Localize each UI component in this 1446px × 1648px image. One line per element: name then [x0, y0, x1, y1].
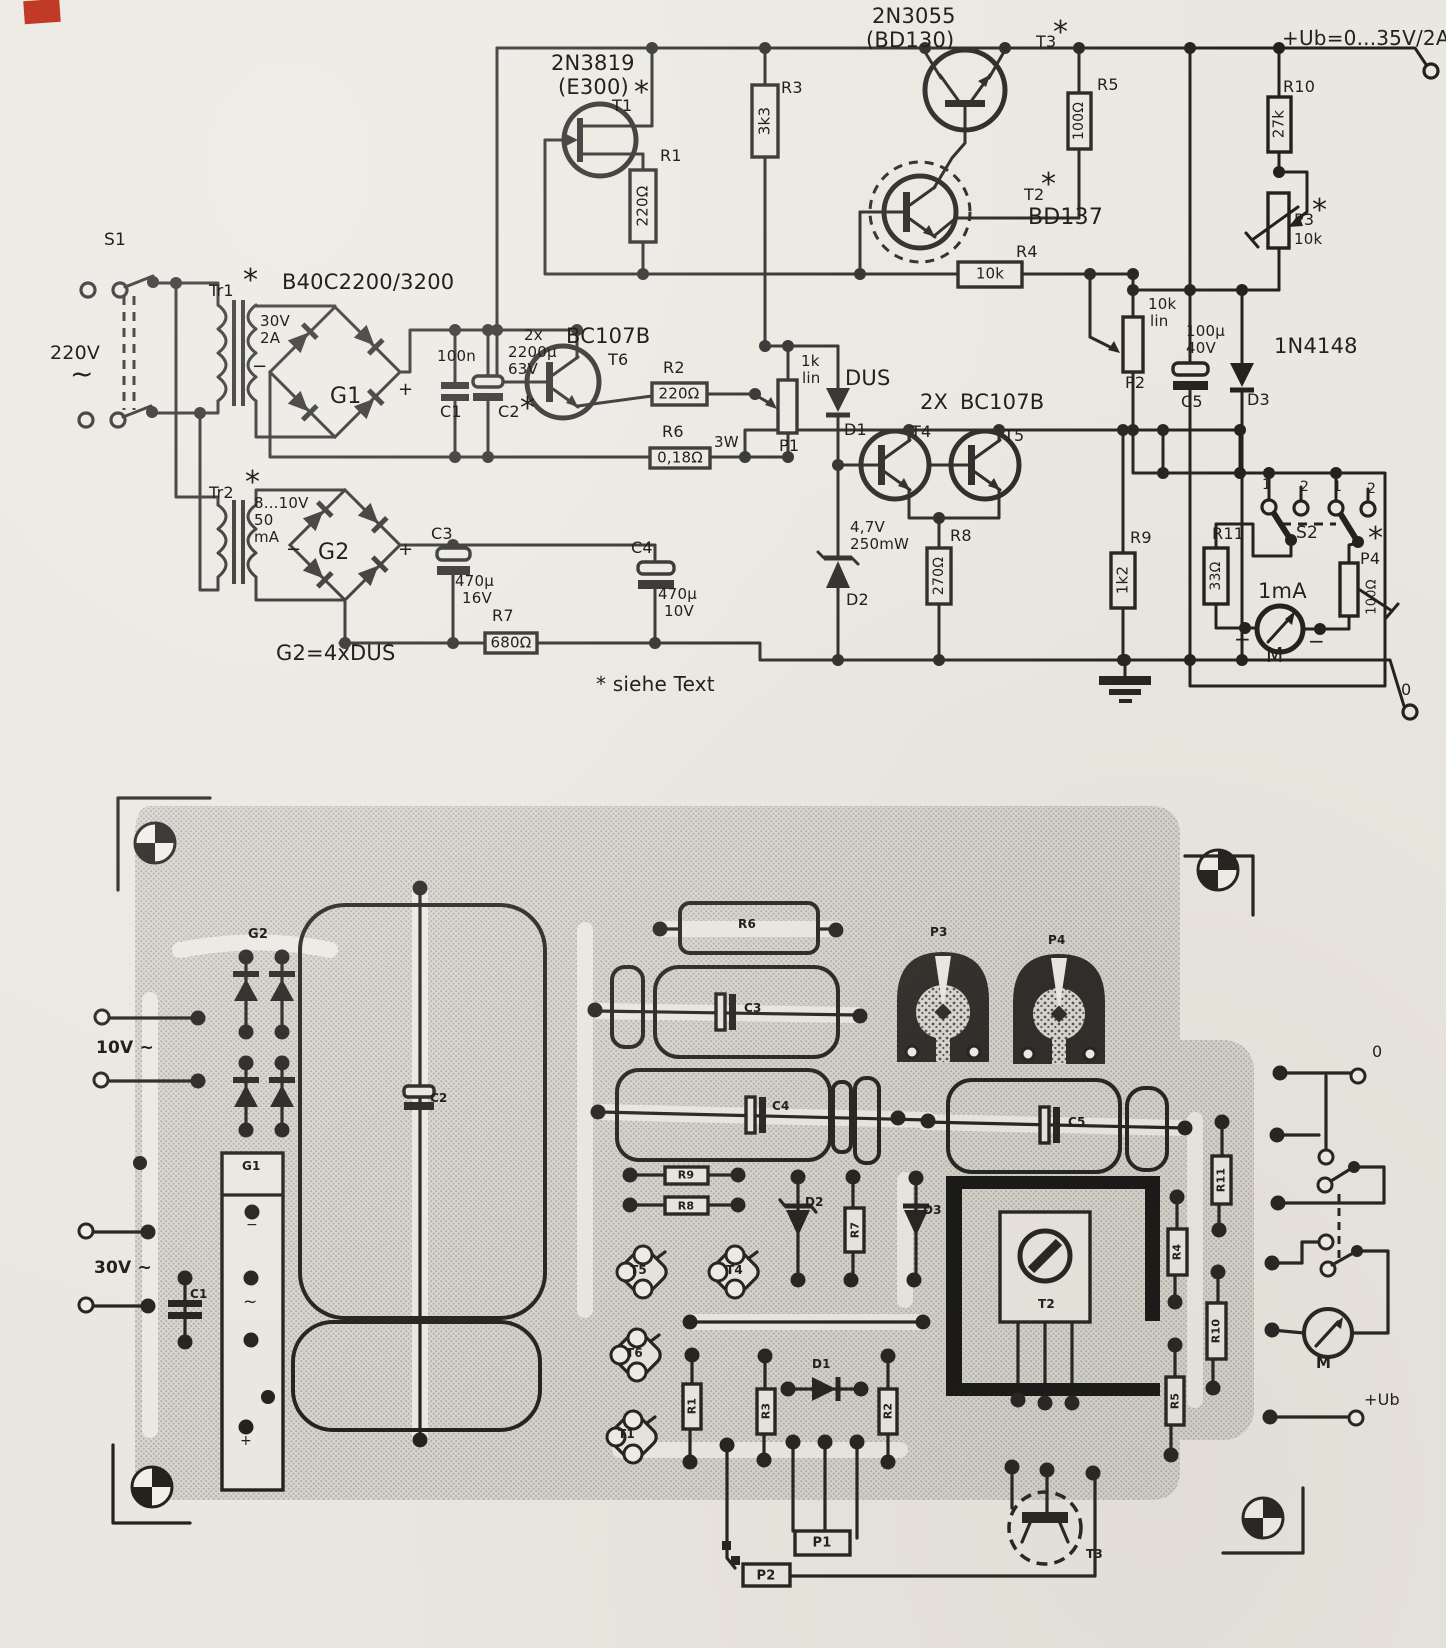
- transistor-t1-fet: [545, 104, 652, 176]
- diode-d3: [1230, 363, 1254, 390]
- p1-label: P1: [779, 438, 799, 454]
- pcb-r9-label: R9: [678, 1170, 695, 1181]
- d1-part: DUS: [845, 368, 890, 389]
- ground-symbol: [1099, 660, 1151, 703]
- pcb-g1-minus: −: [246, 1218, 258, 1232]
- pcb-r7-label: R7: [850, 1222, 861, 1239]
- meter-label: M: [1266, 645, 1283, 665]
- pcb-r8-label: R8: [678, 1201, 695, 1212]
- c5-label: C5: [1181, 394, 1203, 410]
- pcb-t6-label: T6: [626, 1347, 643, 1359]
- r4-value: 10k: [976, 267, 1004, 282]
- schematic-panel: [79, 42, 1438, 719]
- t6-label: T6: [608, 352, 628, 368]
- pcb-r4-label: R4: [1172, 1244, 1183, 1261]
- pcb-r6-label: R6: [738, 918, 756, 930]
- c2-volt: 63V: [508, 362, 538, 377]
- r1-value: 220Ω: [636, 186, 651, 227]
- pcb-p2-label: P2: [757, 1570, 776, 1583]
- pcb-t4-label: T4: [726, 1264, 743, 1276]
- c1-value: 100n: [437, 349, 476, 364]
- pcb-g1-label: G1: [242, 1160, 261, 1172]
- t45-part: BC107B: [960, 392, 1044, 413]
- g2-volt: 8...10V: [254, 496, 309, 511]
- t3-part-alt: (BD130): [866, 30, 954, 51]
- potentiometer-p1: [757, 380, 797, 433]
- d1-label: D1: [844, 422, 867, 438]
- r9-label: R9: [1130, 530, 1152, 546]
- pcb-p3-label: P3: [930, 926, 948, 938]
- r11-label: R11: [1212, 526, 1244, 542]
- p3-value: 10k: [1294, 232, 1322, 247]
- pcb-r10-label: R10: [1211, 1319, 1222, 1343]
- g1-volt: 30V: [260, 314, 290, 329]
- c2-label: C2: [498, 404, 520, 420]
- t3-star: *: [1053, 18, 1068, 48]
- d2-volt: 4,7V: [850, 520, 885, 535]
- diagram-canvas: [0, 0, 1446, 1648]
- t2-part: BD137: [1028, 207, 1103, 229]
- g2-cur: 50: [254, 513, 274, 528]
- c4-label: C4: [631, 540, 653, 556]
- pcb-c2-label: C2: [430, 1092, 448, 1104]
- r1-label: R1: [660, 148, 682, 164]
- pcb-d1-label: D1: [812, 1358, 831, 1370]
- p2-label: P2: [1125, 375, 1145, 391]
- t3-part: 2N3055: [872, 6, 956, 27]
- p2-value: 10k: [1148, 297, 1176, 312]
- r3-value: 3k3: [758, 107, 773, 135]
- r7-value: 680Ω: [491, 636, 532, 651]
- pcb-r1-label: R1: [687, 1398, 698, 1415]
- t6-part: BC107B: [566, 326, 650, 347]
- p2-lin: lin: [1150, 314, 1168, 329]
- pcb-t5-label: T5: [630, 1264, 647, 1276]
- t1-label: T1: [612, 98, 632, 114]
- r8-value: 270Ω: [932, 557, 946, 595]
- note-siehe-text: * siehe Text: [596, 674, 715, 694]
- r2-value: 220Ω: [659, 387, 700, 402]
- g2-label: G2: [318, 542, 349, 564]
- pcb-r2-label: R2: [883, 1403, 894, 1420]
- transformer-tr2: [218, 500, 256, 584]
- g2-minus: −: [286, 541, 301, 559]
- t5-label: T5: [1004, 428, 1024, 444]
- pcb-panel: [79, 798, 1388, 1586]
- c3-value: 470µ: [455, 574, 494, 589]
- pcb-rectifier-g1: [222, 1153, 283, 1490]
- r11-value: 33Ω: [1209, 561, 1223, 590]
- transformer-tr1: [218, 300, 256, 406]
- g1-amp: 2A: [260, 331, 280, 346]
- r3-label: R3: [781, 80, 803, 96]
- s1-label: S1: [104, 232, 126, 249]
- capacitor-c3: [437, 548, 470, 575]
- pcb-g1-ac: ~: [243, 1294, 257, 1311]
- p4-star: *: [1368, 524, 1383, 554]
- t4-label: T4: [911, 424, 931, 440]
- pcb-r3-label: R3: [761, 1403, 772, 1420]
- transistor-t4: [859, 431, 929, 499]
- transistor-t3: [925, 50, 1005, 143]
- pcb-c3-label: C3: [744, 1002, 762, 1014]
- r7-label: R7: [492, 608, 514, 624]
- pcb-g1-plus: +: [240, 1434, 252, 1448]
- s2-label: S2: [1296, 525, 1318, 542]
- pcb-d3-label: D3: [923, 1204, 942, 1216]
- s2-pos-1b: 1: [1333, 480, 1342, 494]
- transistor-t2: [860, 143, 970, 262]
- potentiometer-p2: [1090, 317, 1143, 372]
- t2-star: *: [1041, 170, 1056, 200]
- g2-plus: +: [398, 541, 413, 559]
- meter-range: 1mA: [1258, 581, 1307, 602]
- pcb-c1-label: C1: [190, 1288, 208, 1300]
- r6-watt: 3W: [714, 435, 739, 450]
- pcb-t1-label: T1: [618, 1428, 635, 1440]
- pcb-t2-label: T2: [1038, 1298, 1055, 1310]
- pcb-out0-label: 0: [1372, 1044, 1382, 1060]
- pcb-d2-label: D2: [805, 1196, 824, 1208]
- scan-mark: [23, 0, 61, 24]
- diode-d1: [826, 388, 850, 415]
- pcb-trimmer-p3: [897, 952, 989, 1062]
- p3-star: *: [1312, 196, 1327, 226]
- t1-star: *: [634, 78, 649, 108]
- scanned-page: S1220V~Tr1*Tr2*B40C2200/320030V2A−G1+8..…: [0, 0, 1446, 1648]
- ub-output-terminal: [1424, 64, 1438, 78]
- r10-value: 27k: [1272, 110, 1287, 138]
- d2-label: D2: [846, 592, 869, 608]
- r6-value: 0,18Ω: [657, 451, 703, 466]
- capacitor-c2: [473, 376, 503, 401]
- pcb-r11-label: R11: [1216, 1168, 1227, 1192]
- c4-volt: 10V: [664, 604, 694, 619]
- pcb-p1-label: P1: [813, 1537, 832, 1550]
- r5-value: 100Ω: [1072, 102, 1086, 140]
- c2-star: *: [520, 394, 535, 424]
- g2-note: G2=4xDUS: [276, 643, 396, 664]
- function-switch-s2: [1262, 473, 1375, 548]
- tr1-star: *: [243, 266, 258, 296]
- bridge1-part: B40C2200/3200: [282, 272, 454, 293]
- pcb-ub-label: +Ub: [1364, 1392, 1400, 1408]
- pcb-transistor-t3: [1009, 1492, 1081, 1564]
- g2-cur-unit: mA: [254, 530, 279, 545]
- capacitor-c1: [441, 382, 469, 401]
- pcb-c4-label: C4: [772, 1100, 790, 1112]
- pcb-m-label: M: [1316, 1356, 1331, 1371]
- pcb-trimmer-p4: [1013, 954, 1105, 1064]
- r5-label: R5: [1097, 77, 1119, 93]
- g1-label: G1: [330, 386, 361, 408]
- pcb-g2-label: G2: [248, 928, 268, 941]
- zero-output-terminal: [1403, 705, 1417, 719]
- c1-label: C1: [440, 404, 462, 420]
- tr1-label: Tr1: [209, 283, 234, 299]
- meter-minus: −: [1308, 631, 1325, 651]
- p1-value: 1k: [801, 354, 820, 369]
- c5-value: 100µ: [1186, 324, 1225, 339]
- r9-value: 1k2: [1116, 566, 1131, 594]
- pcb-r5-label: R5: [1170, 1393, 1181, 1410]
- r8-label: R8: [950, 528, 972, 544]
- c4-value: 470µ: [658, 587, 697, 602]
- d3-label: D3: [1247, 392, 1270, 408]
- meter-plus: +: [1234, 629, 1251, 649]
- r2-label: R2: [663, 360, 685, 376]
- s2-pos-1a: 1: [1262, 478, 1271, 492]
- c2-qty: 2x: [524, 328, 543, 343]
- pcb-c5-label: C5: [1068, 1116, 1086, 1128]
- d2-power: 250mW: [850, 537, 909, 552]
- tr2-label: Tr2: [209, 485, 234, 501]
- r10-label: R10: [1283, 79, 1315, 95]
- ub-label: +Ub=0...35V/2A: [1282, 28, 1446, 48]
- t1-part: 2N3819: [551, 53, 635, 74]
- g1-minus: −: [252, 358, 267, 376]
- g1-plus: +: [398, 381, 413, 399]
- c3-label: C3: [431, 526, 453, 542]
- t45-qty: 2X: [920, 392, 948, 413]
- pcb-10v-label: 10V ~: [96, 1040, 154, 1057]
- mains-ac-symbol: ~: [70, 360, 94, 388]
- pcb-t3-label: T3: [1086, 1548, 1103, 1560]
- zener-d2: [818, 552, 858, 588]
- pcb-p4-label: P4: [1048, 934, 1066, 946]
- c2-value: 2200µ: [508, 345, 557, 360]
- p4-value: 100Ω: [1366, 579, 1379, 615]
- pcb-30v-label: 30V ~: [94, 1260, 152, 1277]
- c5-volt: 40V: [1186, 341, 1216, 356]
- c3-volt: 16V: [462, 591, 492, 606]
- t1-part-alt: (E300): [558, 77, 629, 98]
- s2-pos-2a: 2: [1300, 480, 1309, 494]
- out-zero-label: 0: [1401, 682, 1411, 698]
- capacitor-c5: [1173, 363, 1208, 390]
- p1-lin: lin: [802, 371, 820, 386]
- d3-part: 1N4148: [1274, 336, 1358, 357]
- r6-label: R6: [662, 424, 684, 440]
- r4-label: R4: [1016, 244, 1038, 260]
- s2-pos-2b: 2: [1367, 482, 1376, 496]
